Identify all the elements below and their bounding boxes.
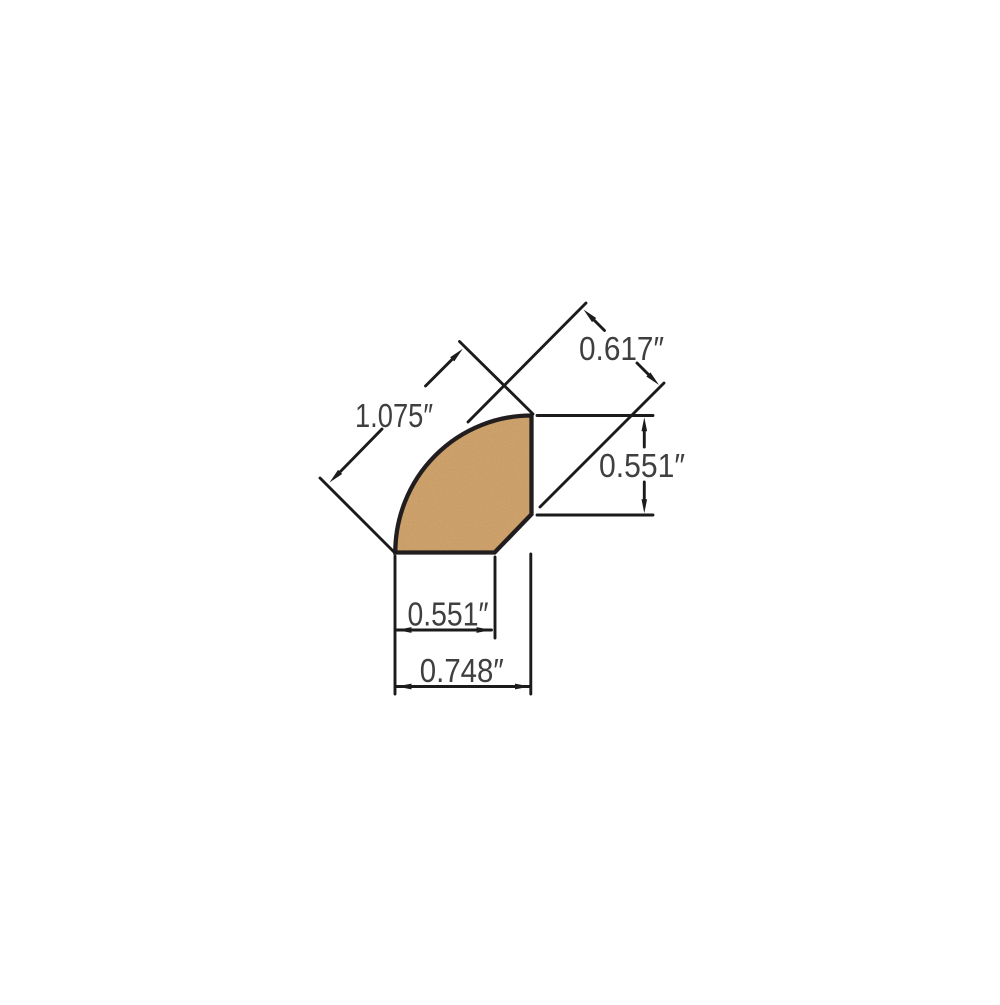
svg-text:0.617″: 0.617″ (579, 330, 664, 367)
svg-text:1.075″: 1.075″ (355, 397, 433, 434)
svg-text:0.551″: 0.551″ (599, 447, 685, 484)
svg-text:0.748″: 0.748″ (420, 652, 504, 689)
svg-text:0.551″: 0.551″ (408, 596, 489, 633)
